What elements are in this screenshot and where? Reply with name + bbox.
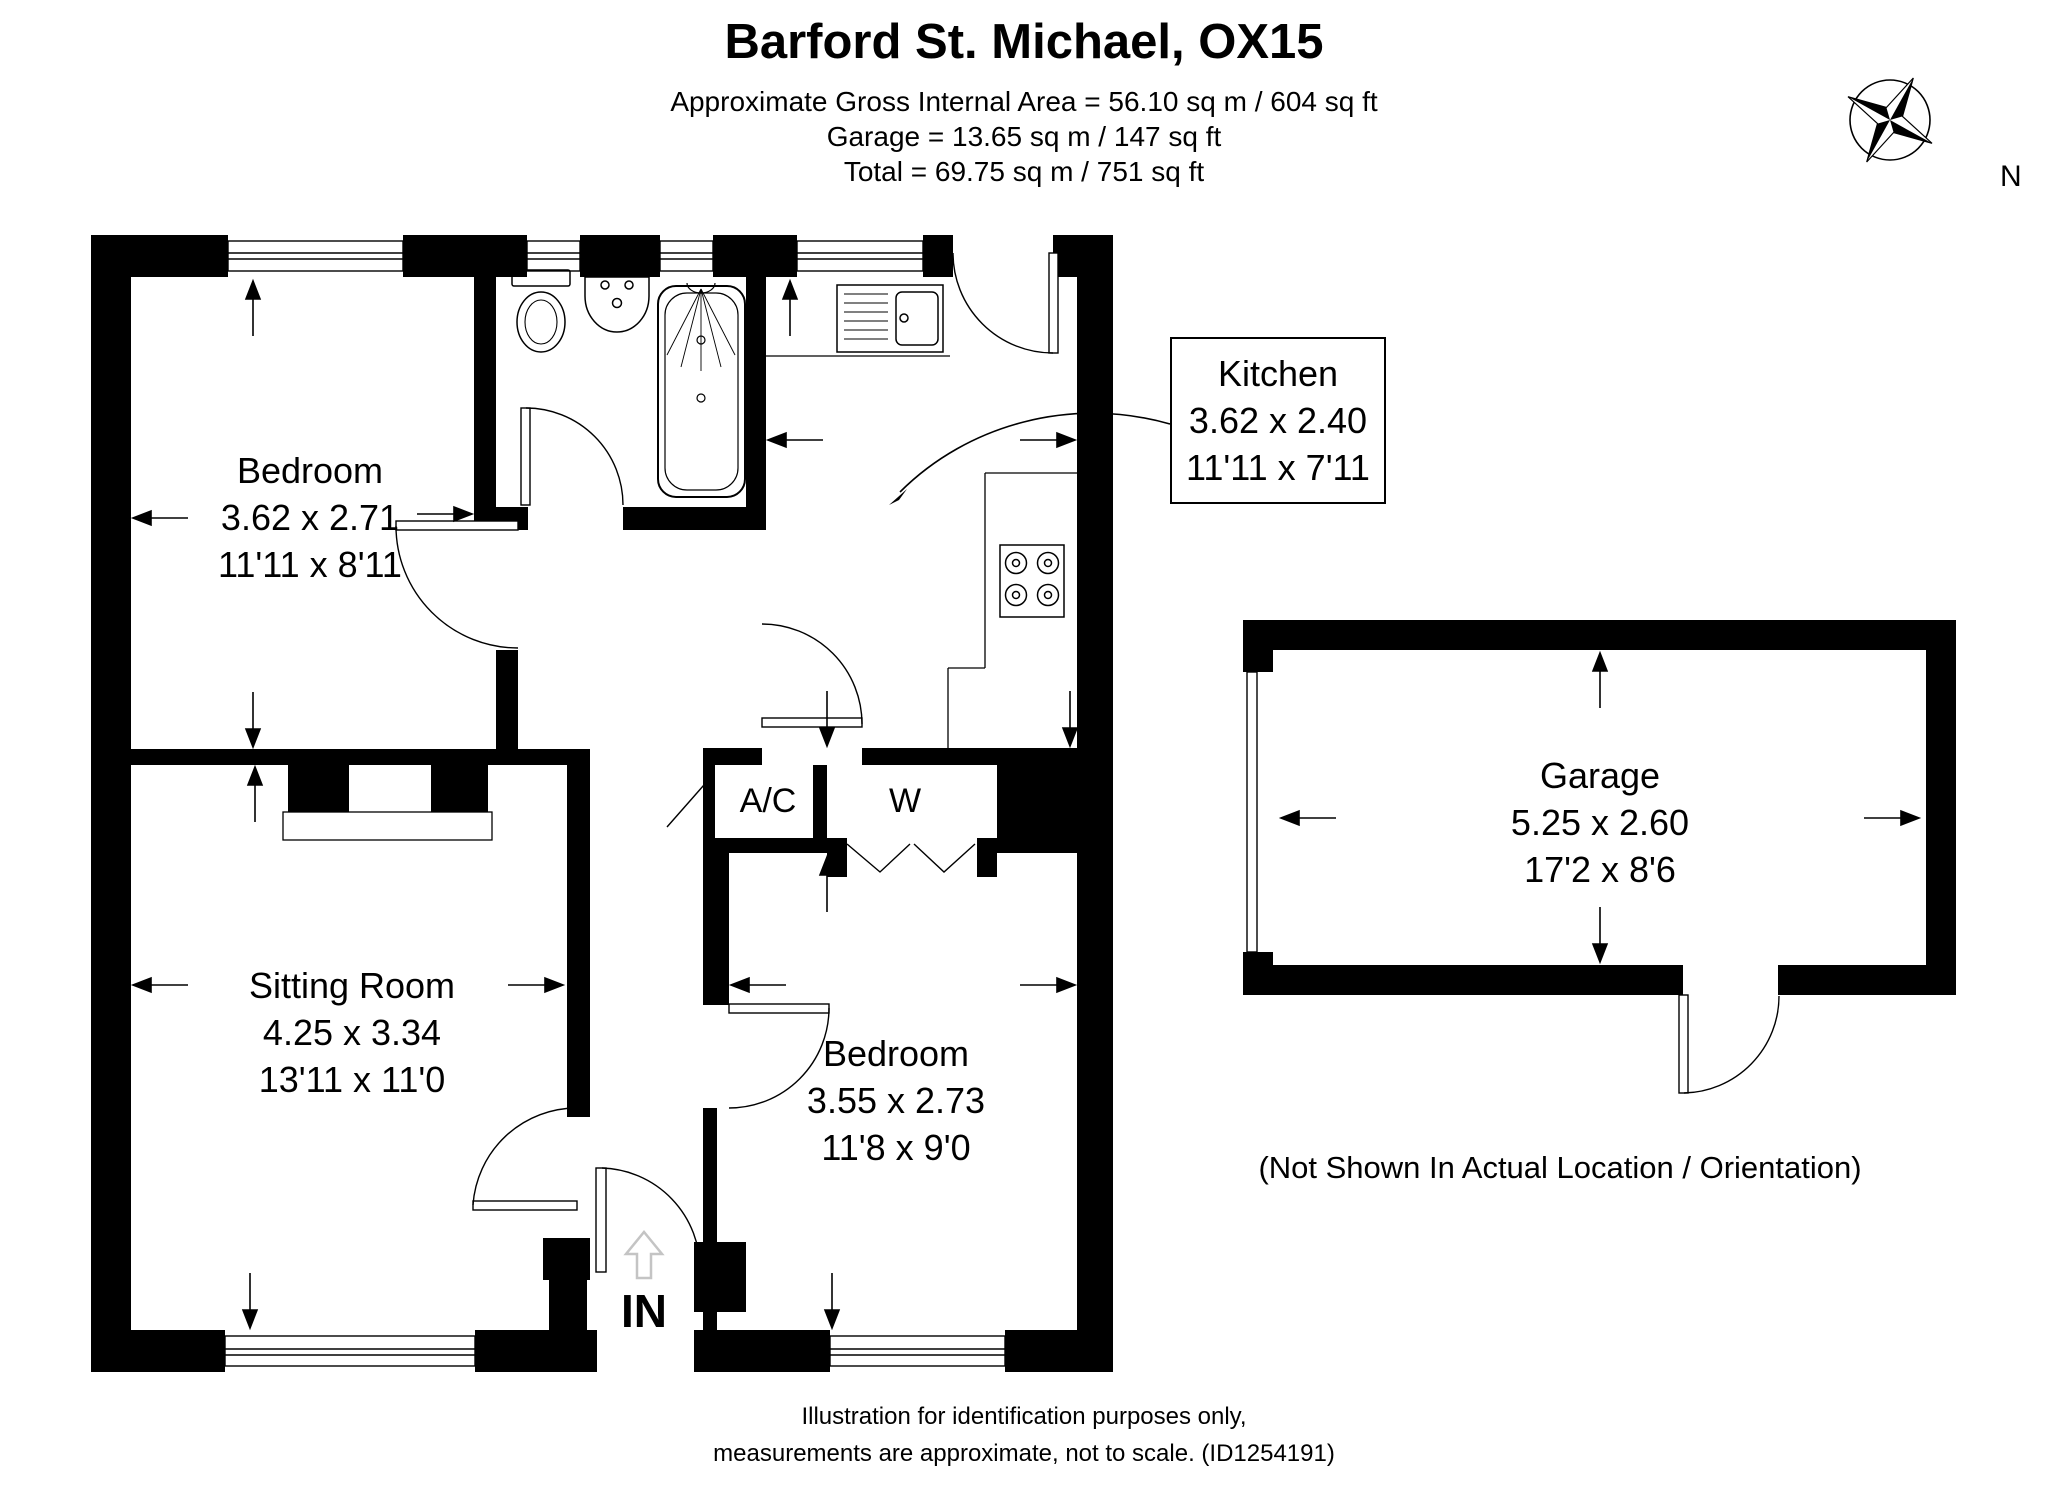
garage-door bbox=[1244, 672, 1260, 952]
wall bbox=[1243, 952, 1273, 995]
dim-arrow bbox=[248, 767, 262, 822]
kitchen-fixtures bbox=[766, 285, 1077, 748]
wall bbox=[694, 1330, 830, 1372]
dim-arrow bbox=[768, 433, 823, 447]
wall bbox=[997, 765, 1077, 853]
room-dims-imperial: 13'11 x 11'0 bbox=[172, 1056, 532, 1103]
wall bbox=[549, 1260, 587, 1332]
dim-arrow bbox=[731, 978, 786, 992]
door-kitchen bbox=[953, 253, 1058, 353]
entry-direction-arrow bbox=[626, 1232, 662, 1278]
dim-arrow bbox=[246, 692, 260, 747]
gross-internal-area: Approximate Gross Internal Area = 56.10 … bbox=[0, 84, 2048, 119]
shower-spray bbox=[667, 289, 735, 371]
hob bbox=[1000, 545, 1064, 617]
dim-arrow bbox=[1020, 433, 1075, 447]
label-wardrobe: W bbox=[845, 782, 965, 821]
garage-location-note: (Not Shown In Actual Location / Orientat… bbox=[1110, 1150, 2010, 1186]
wall bbox=[703, 1108, 717, 1242]
wall bbox=[1005, 1330, 1077, 1372]
kitchen-counter bbox=[766, 356, 1077, 748]
wall bbox=[475, 1330, 597, 1372]
wall bbox=[1926, 620, 1956, 995]
compass-north-label: N bbox=[2000, 160, 2048, 194]
window bbox=[660, 236, 713, 276]
window bbox=[225, 1332, 475, 1370]
dim-arrow bbox=[1020, 978, 1075, 992]
wall bbox=[703, 853, 729, 1005]
room-name: Garage bbox=[1420, 752, 1780, 799]
window bbox=[228, 236, 403, 276]
room-label-garage: Garage 5.25 x 2.60 17'2 x 8'6 bbox=[1420, 752, 1780, 893]
wall bbox=[1778, 965, 1956, 995]
door-bathroom bbox=[521, 408, 623, 505]
dim-arrow bbox=[1063, 691, 1077, 746]
wall bbox=[1077, 235, 1113, 1372]
room-dims-imperial: 11'11 x 7'11 bbox=[1186, 444, 1370, 491]
wall bbox=[703, 748, 762, 765]
bathtub bbox=[658, 283, 745, 497]
wall bbox=[862, 748, 1077, 765]
room-dims-imperial: 17'2 x 8'6 bbox=[1420, 846, 1780, 893]
room-dims-metric: 3.62 x 2.40 bbox=[1186, 397, 1370, 444]
dim-arrow bbox=[1281, 811, 1336, 825]
room-dims-metric: 4.25 x 3.34 bbox=[172, 1009, 532, 1056]
kitchen-sink bbox=[837, 285, 943, 352]
dim-arrow bbox=[825, 1273, 839, 1328]
area-summary: Approximate Gross Internal Area = 56.10 … bbox=[0, 84, 2048, 189]
wall bbox=[567, 765, 590, 1117]
room-label-sitting-room: Sitting Room 4.25 x 3.34 13'11 x 11'0 bbox=[172, 962, 532, 1103]
fireplace-block bbox=[288, 765, 349, 812]
wall bbox=[403, 235, 527, 277]
total-area: Total = 69.75 sq m / 751 sq ft bbox=[0, 154, 2048, 189]
wall bbox=[580, 235, 660, 277]
floorplan-drawing bbox=[0, 0, 2048, 1486]
window bbox=[797, 236, 923, 276]
room-dims-imperial: 11'11 x 8'11 bbox=[130, 541, 490, 588]
room-dims-metric: 5.25 x 2.60 bbox=[1420, 799, 1780, 846]
label-airing-cupboard: A/C bbox=[708, 782, 828, 821]
room-label-bedroom2: Bedroom 3.55 x 2.73 11'8 x 9'0 bbox=[716, 1030, 1076, 1171]
room-name: Sitting Room bbox=[172, 962, 532, 1009]
wall bbox=[746, 277, 766, 530]
header: Barford St. Michael, OX15 Approximate Gr… bbox=[0, 14, 2048, 189]
room-name: Bedroom bbox=[716, 1030, 1076, 1077]
door-hall bbox=[762, 624, 862, 727]
disclaimer: Illustration for identification purposes… bbox=[0, 1398, 2048, 1472]
dim-arrow bbox=[1864, 811, 1919, 825]
wall bbox=[131, 749, 590, 765]
room-label-bedroom1: Bedroom 3.62 x 2.71 11'11 x 8'11 bbox=[130, 447, 490, 588]
wall bbox=[713, 235, 797, 277]
wall bbox=[923, 235, 953, 277]
wall bbox=[977, 838, 997, 877]
room-dims-metric: 3.55 x 2.73 bbox=[716, 1077, 1076, 1124]
disclaimer-line1: Illustration for identification purposes… bbox=[0, 1398, 2048, 1435]
dim-arrow bbox=[1593, 653, 1607, 708]
disclaimer-line2: measurements are approximate, not to sca… bbox=[0, 1435, 2048, 1472]
wall bbox=[496, 650, 518, 749]
basin bbox=[585, 277, 649, 332]
toilet bbox=[512, 270, 570, 352]
fireplace-hearth bbox=[283, 812, 492, 840]
wall bbox=[91, 235, 131, 1372]
entrance-label: IN bbox=[584, 1284, 704, 1338]
floorplan-page: Barford St. Michael, OX15 Approximate Gr… bbox=[0, 0, 2048, 1486]
kitchen-callout-arrow bbox=[889, 413, 1170, 505]
dim-arrow bbox=[246, 281, 260, 336]
dim-arrow bbox=[243, 1273, 257, 1328]
page-title: Barford St. Michael, OX15 bbox=[0, 14, 2048, 70]
room-dims-imperial: 11'8 x 9'0 bbox=[716, 1124, 1076, 1171]
wall bbox=[1243, 620, 1956, 650]
wall bbox=[703, 838, 847, 853]
door-wardrobe-bifold bbox=[847, 844, 975, 872]
room-label-kitchen: Kitchen 3.62 x 2.40 11'11 x 7'11 bbox=[1170, 337, 1386, 504]
room-name: Kitchen bbox=[1186, 350, 1370, 397]
wall bbox=[1243, 965, 1683, 995]
wall bbox=[703, 1312, 717, 1332]
door-garage-rear bbox=[1679, 995, 1779, 1093]
wall bbox=[1243, 620, 1273, 672]
fireplace-block bbox=[431, 765, 488, 812]
door-sitting-room bbox=[473, 1108, 577, 1210]
wall bbox=[623, 507, 766, 530]
wall bbox=[91, 1330, 225, 1372]
room-dims-metric: 3.62 x 2.71 bbox=[130, 494, 490, 541]
dim-arrow bbox=[1593, 907, 1607, 962]
dim-arrow bbox=[783, 281, 797, 336]
room-name: Bedroom bbox=[130, 447, 490, 494]
garage-area: Garage = 13.65 sq m / 147 sq ft bbox=[0, 119, 2048, 154]
bathroom-fixtures bbox=[512, 270, 745, 497]
window bbox=[830, 1332, 1005, 1370]
door-entrance bbox=[596, 1168, 700, 1272]
